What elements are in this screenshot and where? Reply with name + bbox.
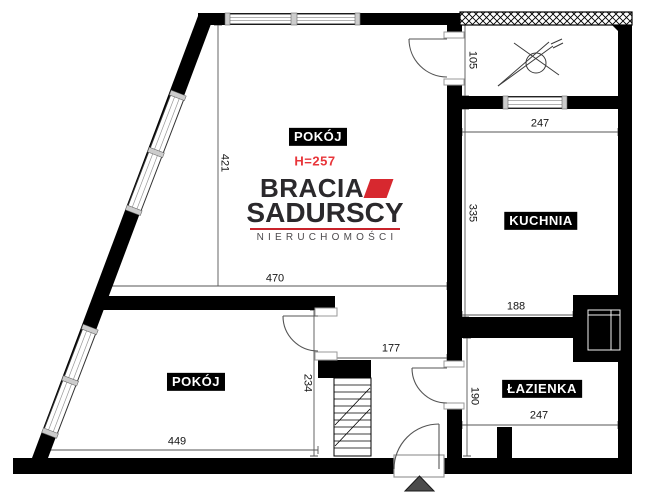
entrance-threshold [394, 455, 444, 477]
floor-plan-drawing [0, 0, 650, 500]
window-kitchen-pass [503, 96, 567, 109]
dim-room-top-width: 470 [265, 274, 285, 285]
window-diagonal-lower [42, 324, 99, 438]
floor-plan-page: 421 470 105 247 335 188 190 247 177 234 … [0, 0, 650, 500]
compass-arrow-icon [498, 39, 563, 86]
agency-logo: BRACIA SADURSCY NIERUCHOMOŚCI [244, 177, 406, 243]
entrance-arrow-icon [405, 476, 434, 491]
dim-kitchen-width: 247 [530, 119, 550, 130]
dim-bathroom-width: 247 [529, 411, 549, 422]
logo-line1: BRACIA [260, 177, 364, 199]
room-label-bathroom: ŁAZIENKA [502, 380, 582, 398]
dim-bathroom-top-width: 188 [506, 302, 526, 313]
dim-vent-corridor-height: 105 [467, 50, 478, 70]
window-top [225, 13, 360, 25]
door-room-top [409, 39, 447, 77]
duct-shaft [573, 295, 620, 362]
logo-flag-icon [364, 179, 394, 198]
ceiling-height-note: H=257 [294, 154, 335, 169]
stairs [334, 378, 371, 456]
room-label-bottom: POKÓJ [167, 373, 225, 391]
dim-kitchen-height: 335 [467, 203, 478, 223]
dim-room-bottom-width: 449 [167, 437, 187, 448]
hatched-wall [460, 12, 632, 25]
window-diagonal-upper [125, 90, 186, 215]
logo-line2: SADURSCY [244, 201, 406, 225]
dim-hall-passage-width: 177 [381, 344, 401, 355]
dim-room-top-height: 421 [219, 153, 230, 173]
door-room-bottom [283, 316, 318, 351]
dim-room-bottom-height: 234 [302, 373, 313, 393]
door-bathroom [412, 368, 447, 403]
room-label-kitchen: KUCHNIA [504, 212, 577, 230]
room-label-top: POKÓJ [289, 128, 347, 146]
logo-divider [250, 228, 400, 231]
logo-line3: NIERUCHOMOŚCI [244, 232, 406, 243]
dim-bathroom-height: 190 [469, 386, 480, 406]
